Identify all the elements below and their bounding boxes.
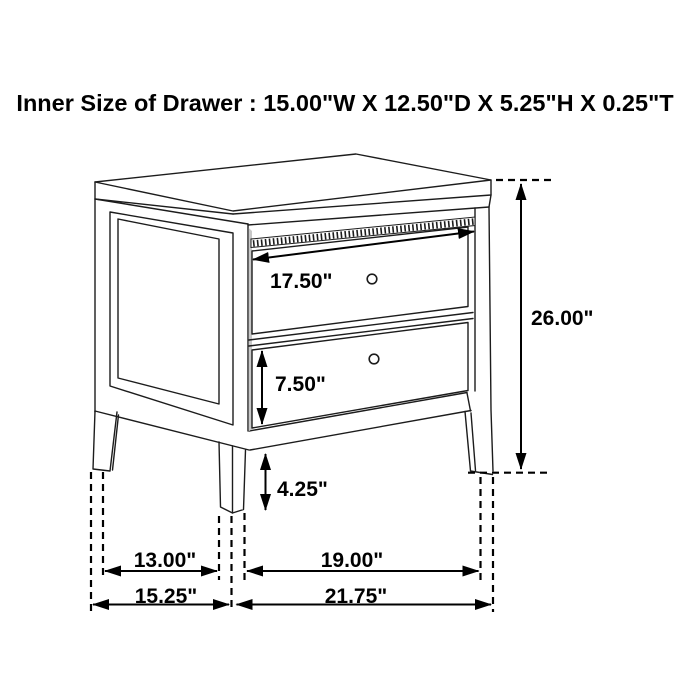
- dim-label-overall-depth: 15.25": [135, 585, 198, 608]
- diagram-canvas: Inner Size of Drawer : 15.00"W X 12.50"D…: [0, 0, 700, 700]
- back-left-leg: [93, 411, 119, 471]
- dim-overall-width: 21.75": [237, 585, 492, 608]
- nightstand-top: [95, 154, 491, 214]
- dim-label-side-leg-gap: 13.00": [134, 549, 197, 572]
- dim-label-bottom-drawer-height: 7.50": [275, 373, 326, 396]
- top-drawer-knob: [367, 274, 377, 284]
- page-title: Inner Size of Drawer : 15.00"W X 12.50"D…: [16, 90, 674, 116]
- front-right-leg: [465, 412, 493, 475]
- dim-label-overall-height: 26.00": [531, 307, 594, 330]
- front-left-leg: [219, 442, 246, 513]
- dim-side-leg-gap: 13.00": [105, 549, 217, 572]
- screenshot-root: Inner Size of Drawer : 15.00"W X 12.50"D…: [0, 0, 700, 700]
- bottom-drawer-knob: [369, 354, 379, 364]
- nightstand-drawing: [93, 154, 493, 513]
- dim-label-front-leg-gap: 19.00": [321, 549, 384, 572]
- dim-label-leg-height: 4.25": [277, 478, 328, 501]
- dim-overall-height: 26.00": [468, 180, 594, 473]
- dim-front-leg-gap: 19.00": [247, 549, 479, 572]
- dim-leg-height: 4.25": [266, 454, 328, 510]
- dim-label-overall-width: 21.75": [325, 585, 388, 608]
- side-panel: [95, 212, 249, 450]
- dim-label-drawer-width: 17.50": [270, 270, 333, 293]
- dim-overall-depth: 15.25": [93, 585, 229, 608]
